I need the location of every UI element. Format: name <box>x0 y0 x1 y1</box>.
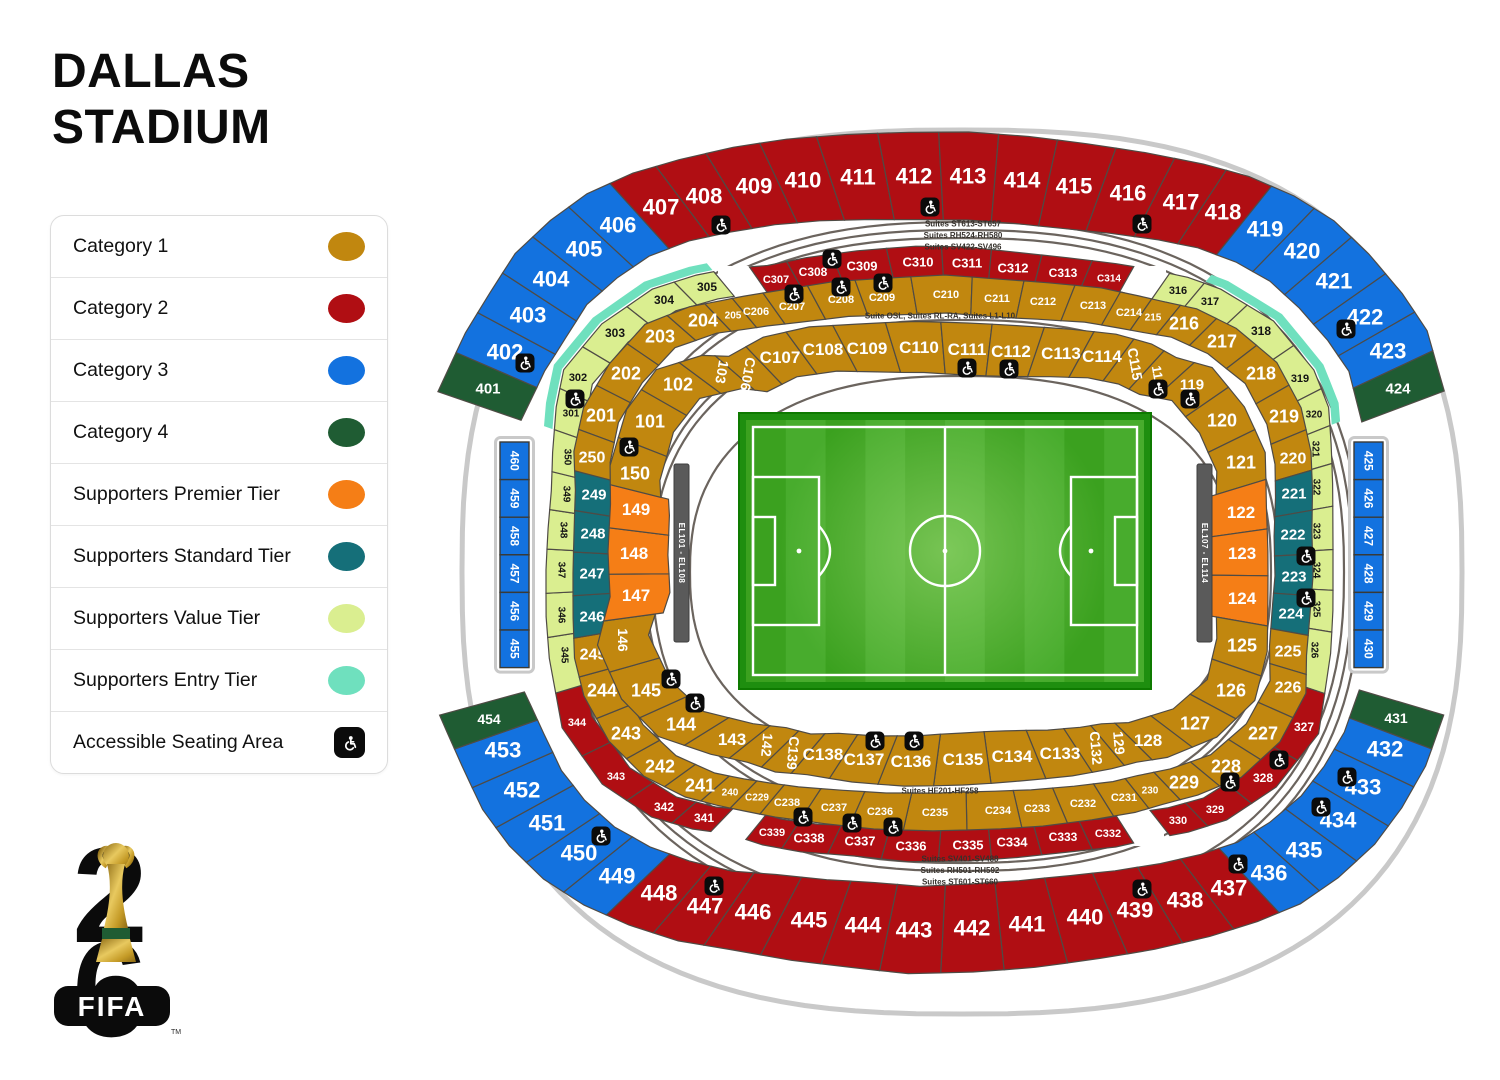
elevator-label: EL107 - EL114 <box>1200 523 1209 583</box>
accessible-icon <box>884 818 903 837</box>
section-label-C209: C209 <box>869 292 895 304</box>
section-label-429: 429 <box>1361 601 1375 621</box>
section-label-401: 401 <box>475 380 500 397</box>
accessible-icon <box>705 877 724 896</box>
section-label-147: 147 <box>622 586 650 605</box>
strip-right: 425426427428429430 <box>1350 438 1388 673</box>
accessible-icon <box>785 285 804 304</box>
section-label-203: 203 <box>645 326 675 346</box>
section-label-346: 346 <box>556 607 567 624</box>
section-label-222: 222 <box>1280 526 1305 543</box>
section-label-143: 143 <box>718 730 746 749</box>
accessible-icon <box>794 808 813 827</box>
suite-label: Suite OSL, Suites RL-RA, Suites L1-L10 <box>865 312 1016 321</box>
section-label-142: 142 <box>758 733 776 758</box>
section-label-413: 413 <box>950 164 987 189</box>
section-label-148: 148 <box>620 544 648 563</box>
section-label-149: 149 <box>622 500 650 519</box>
section-label-404: 404 <box>533 267 570 292</box>
section-label-145: 145 <box>631 680 661 700</box>
suite-label: Suites RH501-RH592 <box>921 866 1000 875</box>
accessible-icon <box>712 216 731 235</box>
section-label-458: 458 <box>507 526 521 546</box>
section-label-C206: C206 <box>743 306 769 318</box>
section-label-220: 220 <box>1280 451 1307 468</box>
accessible-icon <box>1337 320 1356 339</box>
section-label-124: 124 <box>1228 589 1257 608</box>
section-label-125: 125 <box>1227 635 1257 655</box>
section-label-301: 301 <box>563 409 580 420</box>
section-label-430: 430 <box>1361 639 1375 659</box>
section-label-305: 305 <box>697 280 717 294</box>
soccer-pitch <box>739 386 1151 716</box>
section-label-C310: C310 <box>902 255 933 270</box>
section-label-C308: C308 <box>799 265 828 279</box>
suite-label: Suites HF201-HF258 <box>902 787 979 796</box>
section-label-229: 229 <box>1169 772 1199 792</box>
section-label-317: 317 <box>1201 296 1219 308</box>
section-label-453: 453 <box>485 738 522 763</box>
suite-label: Suites SV422-SV496 <box>925 243 1002 252</box>
section-label-121: 121 <box>1226 452 1256 472</box>
section-label-C312: C312 <box>997 261 1028 276</box>
section-label-348: 348 <box>558 522 569 539</box>
section-label-417: 417 <box>1163 190 1200 215</box>
section-label-C234: C234 <box>985 805 1012 817</box>
accessible-icon <box>843 814 862 833</box>
section-label-415: 415 <box>1056 174 1093 199</box>
section-label-318: 318 <box>1251 324 1271 338</box>
section-label-454: 454 <box>477 711 501 727</box>
accessible-icon <box>1229 855 1248 874</box>
section-label-201: 201 <box>586 405 616 425</box>
section-label-C110: C110 <box>899 338 939 357</box>
suite-label: Suites SV401-SV488 <box>922 855 999 864</box>
accessible-icon <box>516 354 535 373</box>
section-label-126: 126 <box>1216 680 1246 700</box>
section-label-426: 426 <box>1361 488 1375 508</box>
accessible-icon <box>1149 380 1168 399</box>
section-label-349: 349 <box>561 486 572 503</box>
section-label-327: 327 <box>1294 720 1314 734</box>
section-label-320: 320 <box>1306 410 1323 421</box>
section-label-448: 448 <box>641 881 678 906</box>
section-label-217: 217 <box>1207 331 1237 351</box>
section-label-407: 407 <box>643 195 680 220</box>
section-label-146: 146 <box>615 628 631 652</box>
section-label-204: 204 <box>688 310 718 330</box>
section-label-329: 329 <box>1206 804 1224 816</box>
section-label-122: 122 <box>1227 503 1255 522</box>
section-label-202: 202 <box>611 363 641 383</box>
section-label-445: 445 <box>791 908 828 933</box>
section-label-227: 227 <box>1248 723 1278 743</box>
elevator-bar: EL107 - EL114 <box>1197 464 1212 642</box>
section-label-406: 406 <box>600 213 637 238</box>
section-label-438: 438 <box>1167 888 1204 913</box>
accessible-icon <box>1181 390 1200 409</box>
logo-wordmark: FIFA <box>78 991 147 1022</box>
section-label-452: 452 <box>504 778 541 803</box>
section-label-347: 347 <box>556 562 567 579</box>
section-label-123: 123 <box>1228 544 1256 563</box>
section-label-450: 450 <box>561 841 598 866</box>
section-label-302: 302 <box>569 372 587 384</box>
section-label-241: 241 <box>685 775 715 795</box>
section-label-216: 216 <box>1169 313 1199 333</box>
accessible-icon <box>1338 768 1357 787</box>
section-label-341: 341 <box>694 811 714 825</box>
section-label-C236: C236 <box>867 806 893 818</box>
section-label-303: 303 <box>605 326 625 340</box>
section-label-230: 230 <box>1142 786 1159 797</box>
section-label-C132: C132 <box>1087 731 1106 766</box>
stadium-map: 4014024034044054064074084094104114124134… <box>0 0 1500 1080</box>
section-label-C113: C113 <box>1041 344 1081 363</box>
section-label-343: 343 <box>607 771 625 783</box>
elevator-bar: EL101 - EL108 <box>674 464 689 642</box>
section-label-456: 456 <box>507 601 521 621</box>
section-label-425: 425 <box>1361 451 1375 471</box>
suite-label: Suites ST613-ST657 <box>925 220 1002 229</box>
section-label-443: 443 <box>896 918 933 943</box>
section-label-C108: C108 <box>803 340 844 359</box>
accessible-icon <box>620 438 639 457</box>
section-label-C133: C133 <box>1040 744 1081 763</box>
section-label-457: 457 <box>507 564 521 584</box>
section-label-C107: C107 <box>760 348 801 367</box>
section-label-437: 437 <box>1211 876 1248 901</box>
section-label-C212: C212 <box>1030 296 1056 308</box>
section-label-C112: C112 <box>991 342 1031 361</box>
section-label-225: 225 <box>1275 644 1302 661</box>
accessible-icon <box>686 694 705 713</box>
section-label-C134: C134 <box>992 747 1033 766</box>
section-label-414: 414 <box>1004 168 1041 193</box>
section-label-C109: C109 <box>847 339 888 358</box>
section-label-C138: C138 <box>803 745 844 764</box>
section-label-424: 424 <box>1385 380 1411 397</box>
accessible-icon <box>832 278 851 297</box>
section-label-226: 226 <box>1275 680 1302 697</box>
section-label-C311: C311 <box>952 256 982 271</box>
section-label-150: 150 <box>620 463 650 483</box>
accessible-icon <box>1133 215 1152 234</box>
section-label-419: 419 <box>1247 217 1284 242</box>
section-label-C137: C137 <box>844 750 885 769</box>
section-label-408: 408 <box>686 184 723 209</box>
accessible-icon <box>1297 589 1316 608</box>
section-label-432: 432 <box>1367 737 1404 762</box>
section-label-215: 215 <box>1145 313 1162 324</box>
section-label-246: 246 <box>579 608 604 625</box>
section-label-205: 205 <box>725 311 742 322</box>
section-label-C231: C231 <box>1111 792 1137 804</box>
section-label-C336: C336 <box>895 839 926 854</box>
section-label-420: 420 <box>1284 239 1321 264</box>
section-label-421: 421 <box>1316 269 1353 294</box>
section-label-C229: C229 <box>745 793 769 804</box>
section-label-350: 350 <box>562 449 573 466</box>
accessible-icon <box>1297 547 1316 566</box>
section-label-101: 101 <box>635 411 665 431</box>
section-label-444: 444 <box>845 913 882 938</box>
section-label-250: 250 <box>579 450 606 467</box>
section-label-C338: C338 <box>793 831 824 846</box>
section-label-249: 249 <box>581 486 606 503</box>
suite-label: Suites RH524-RH580 <box>924 231 1003 240</box>
accessible-icon <box>662 670 681 689</box>
section-label-330: 330 <box>1169 815 1187 827</box>
accessible-icon <box>866 732 885 751</box>
accessible-icon <box>958 359 977 378</box>
section-label-304: 304 <box>654 293 674 307</box>
section-label-449: 449 <box>599 864 636 889</box>
section-label-423: 423 <box>1370 339 1407 364</box>
section-label-244: 244 <box>587 680 617 700</box>
section-label-328: 328 <box>1253 771 1273 785</box>
section-label-C334: C334 <box>996 835 1028 850</box>
section-label-C139: C139 <box>784 736 803 771</box>
section-label-C232: C232 <box>1070 798 1096 810</box>
section-label-221: 221 <box>1281 485 1306 502</box>
section-label-455: 455 <box>507 639 521 659</box>
section-label-C237: C237 <box>821 802 847 814</box>
section-label-C337: C337 <box>844 834 875 849</box>
section-label-440: 440 <box>1067 905 1104 930</box>
accessible-icon <box>566 390 585 409</box>
section-label-460: 460 <box>507 451 521 471</box>
section-label-102: 102 <box>663 374 693 394</box>
accessible-icon <box>905 732 924 751</box>
section-label-242: 242 <box>645 756 675 776</box>
section-label-441: 441 <box>1009 912 1046 937</box>
elevator-label: EL101 - EL108 <box>677 523 686 584</box>
section-label-446: 446 <box>735 900 772 925</box>
section-label-344: 344 <box>568 717 587 729</box>
section-label-C111: C111 <box>948 340 987 359</box>
section-label-C210: C210 <box>933 289 959 301</box>
section-label-223: 223 <box>1281 568 1306 585</box>
section-label-127: 127 <box>1180 713 1210 733</box>
section-label-316: 316 <box>1169 285 1187 297</box>
accessible-icon <box>874 274 893 293</box>
section-label-C314: C314 <box>1097 274 1121 285</box>
page: DALLAS STADIUM Category 1Category 2Categ… <box>0 0 1500 1080</box>
section-label-319: 319 <box>1291 373 1309 385</box>
section-label-C333: C333 <box>1049 830 1078 844</box>
section-label-447: 447 <box>687 894 724 919</box>
section-label-412: 412 <box>896 164 933 189</box>
section-label-435: 435 <box>1286 838 1323 863</box>
logo-tm: TM <box>171 1029 181 1036</box>
section-label-428: 428 <box>1361 564 1375 584</box>
section-label-411: 411 <box>840 165 876 190</box>
strip-left: 460459458457456455 <box>496 438 534 673</box>
section-label-418: 418 <box>1205 200 1242 225</box>
accessible-icon <box>1270 751 1289 770</box>
fifa-26-logo: 2 6 FIFA TM <box>52 836 184 1047</box>
section-label-C233: C233 <box>1024 803 1050 815</box>
section-label-219: 219 <box>1269 406 1299 426</box>
section-label-459: 459 <box>507 488 521 508</box>
section-label-C136: C136 <box>891 752 932 771</box>
section-label-410: 410 <box>785 168 822 193</box>
section-label-C135: C135 <box>943 750 984 769</box>
section-label-C307: C307 <box>763 274 789 286</box>
section-label-427: 427 <box>1361 526 1375 546</box>
section-label-C235: C235 <box>922 807 948 819</box>
section-label-C339: C339 <box>759 827 785 839</box>
section-label-405: 405 <box>566 237 603 262</box>
section-label-129: 129 <box>1110 731 1128 756</box>
section-label-C213: C213 <box>1080 300 1106 312</box>
section-label-C211: C211 <box>984 293 1010 305</box>
section-label-451: 451 <box>529 811 566 836</box>
section-label-144: 144 <box>666 714 696 734</box>
accessible-icon <box>823 250 842 269</box>
section-label-C238: C238 <box>774 797 800 809</box>
section-label-416: 416 <box>1110 181 1147 206</box>
section-label-243: 243 <box>611 723 641 743</box>
section-label-439: 439 <box>1117 898 1154 923</box>
accessible-icon <box>1000 360 1019 379</box>
accessible-icon <box>921 198 940 217</box>
section-label-C214: C214 <box>1116 307 1143 319</box>
section-label-345: 345 <box>559 647 570 664</box>
section-label-240: 240 <box>722 788 739 799</box>
section-label-248: 248 <box>580 525 605 542</box>
section-label-120: 120 <box>1207 410 1237 430</box>
section-label-C309: C309 <box>846 259 877 274</box>
section-label-224: 224 <box>1278 605 1304 622</box>
section-label-C335: C335 <box>952 838 983 853</box>
section-label-247: 247 <box>579 565 604 582</box>
section-label-C313: C313 <box>1049 266 1078 280</box>
section-label-218: 218 <box>1246 363 1276 383</box>
section-label-436: 436 <box>1251 861 1288 886</box>
accessible-icon <box>1221 773 1240 792</box>
section-label-128: 128 <box>1134 731 1162 750</box>
section-label-431: 431 <box>1384 710 1408 726</box>
section-label-442: 442 <box>954 916 991 941</box>
suite-label: Suites ST601-ST660 <box>922 878 999 887</box>
section-label-326: 326 <box>1309 642 1320 659</box>
accessible-icon <box>1133 880 1152 899</box>
section-label-409: 409 <box>736 174 773 199</box>
accessible-icon <box>592 827 611 846</box>
section-label-C332: C332 <box>1095 828 1121 840</box>
accessible-icon <box>1312 798 1331 817</box>
section-label-C114: C114 <box>1082 347 1122 366</box>
section-label-403: 403 <box>510 303 547 328</box>
section-label-342: 342 <box>654 800 674 814</box>
